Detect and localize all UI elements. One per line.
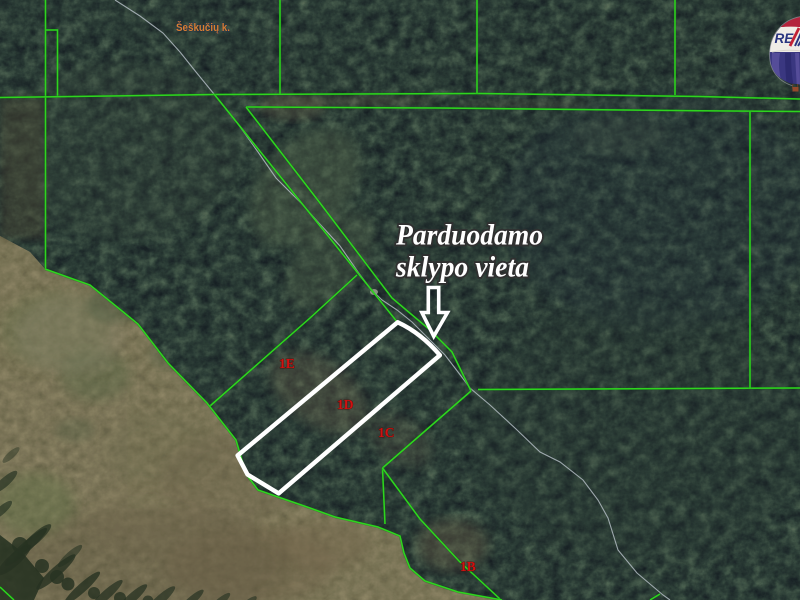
- svg-text:Parduodamo: Parduodamo: [395, 219, 543, 252]
- svg-text:1E: 1E: [279, 356, 295, 371]
- svg-text:sklypo vieta: sklypo vieta: [395, 251, 529, 284]
- svg-text:1B: 1B: [460, 559, 476, 574]
- svg-text:1C: 1C: [378, 425, 395, 440]
- svg-text:1D: 1D: [337, 397, 354, 412]
- svg-text:Šeškučių k.: Šeškučių k.: [176, 21, 230, 34]
